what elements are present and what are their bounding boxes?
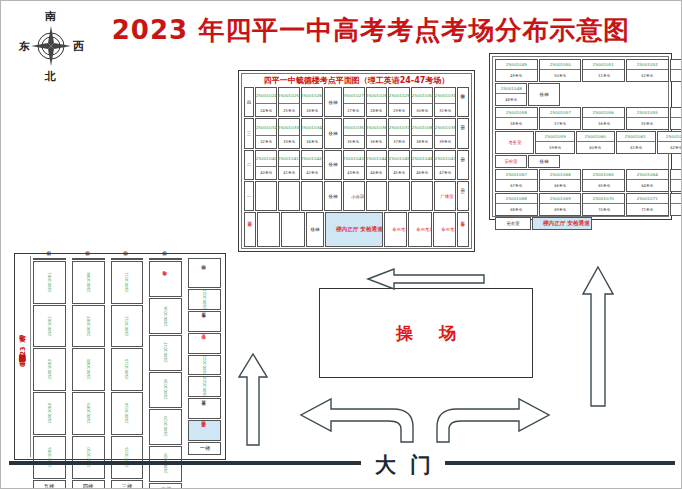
room-cell: 25001016 [149,298,182,334]
curved-arrow-right [433,397,553,443]
text: 45考场 [393,170,405,175]
room-cell: 2500107171考场 [626,193,669,216]
text: 33考场 [283,139,295,144]
page-title: 2023 年四平一中高考考点考场分布示意图 [71,13,671,48]
stairs-cell: 楼梯 [33,258,66,260]
room-label: 43考场 [344,167,364,179]
text: 66考场 [554,183,566,188]
text: 25001030 [412,93,433,98]
text: 30考场 [416,108,428,113]
room-number: 25001042 [302,151,322,167]
room-label: 24考场 [256,104,276,116]
special-room-cell: 考务室 [495,131,534,154]
building-left-title: 四平一中思齐楼考点平面图（理工英语01-23考场） [17,256,31,457]
text: 25001009 [86,403,91,423]
room-cell: 2500104040考场 [255,150,277,180]
gate-line-right [445,461,675,465]
text: 25001034 [301,125,322,130]
room-label: 34考场 [302,136,322,148]
room-cell: 2500104343考场 [343,150,365,180]
room-label: 71考场 [627,204,668,215]
empty-cell [278,181,300,211]
room-number: 25001048 [496,84,526,94]
room-number: 25001037 [389,119,409,135]
text: 47考场 [439,170,451,175]
room-cell: 2500102525考场 [278,87,300,117]
room-label: 60考场 [577,142,614,153]
text: 一 [247,193,251,199]
room-label: 68考场 [496,204,537,215]
room-cell: 25001005 [33,436,66,479]
room-cell: 25001014 [111,392,144,435]
room-label: 62考场 [658,142,682,153]
room-label: 36考场 [367,136,387,148]
text: 25001039 [434,125,455,130]
text: 25001023 [202,377,207,397]
building-right: 四平一中致远楼考点平面图（理工英语48-72考场） 2500104949考场25… [489,53,672,220]
text: 更衣室 [506,220,519,226]
gate-line-left [9,461,361,465]
text: 25001001 [47,272,52,292]
floor-row: 2500104949考场2500105050考场2500105151考场2500… [495,59,666,82]
text: 25001043 [343,156,364,161]
room-number: 25001034 [302,119,322,135]
building-middle: 四平一中毓德楼考点平面图（理工英语24-47考场） 四2500102424考场2… [238,70,475,252]
text: 25001027 [343,93,364,98]
room-number: 25001071 [627,194,668,204]
room-number: 25001045 [389,151,409,167]
text: 64考场 [642,183,654,188]
room-cell: 25001021 [188,289,221,310]
stairs-cell: 楼梯 [324,87,342,117]
room-label: 26考场 [302,104,322,116]
floor-row: 考务室2500105959考场2500106060考场2500106161考场2… [495,131,666,154]
text: 52考场 [642,73,654,78]
backup-room-cell: 备用考场 [408,212,431,247]
text: 25001008 [86,360,91,380]
text: 25001051 [593,62,614,67]
floor-column: 楼梯备用考场2500101625001017250010182500101925… [149,258,182,455]
stairs-cell: 楼梯 [324,181,342,211]
empty-space [592,217,653,230]
room-cell: 2500106060考场 [576,131,615,154]
room-label: 55考场 [627,118,668,129]
room-cell: 2500106969考场 [539,193,582,216]
room-cell: 2500106262考场 [657,131,682,154]
text: 25001028 [366,93,387,98]
room-cell: 2500106767考场 [495,169,538,192]
floor-column: 楼梯25001001250010022500100325001004250010… [33,258,66,455]
text: 25001006 [86,272,91,292]
room-number: 25001028 [367,88,387,104]
floor-cell: 三 [244,118,254,148]
room-cell: 25001018 [149,372,182,408]
text: 25001018 [164,380,169,400]
room-number: 25001046 [412,151,432,167]
text: 安检室 [504,158,517,164]
room-number: 25001054 [671,108,682,118]
floor-row: 一楼梯小会议室广播室一楼 [244,181,469,211]
room-cell: 25001004 [33,392,66,435]
curved-arrow-left [297,397,417,443]
room-label: 25考场 [279,104,299,116]
text: 二楼 [161,486,171,489]
up-arrow-right [582,266,614,408]
room-label: 29考场 [389,104,409,116]
text: 楼内正厅 安检通道 [336,226,383,232]
stairs-cell: 楼梯 [188,258,221,288]
column-cells: 2500100625001007250010082500100925001010 [72,261,105,480]
text: 68考场 [510,207,522,212]
text: 25001013 [125,360,130,380]
text: 25001066 [549,172,570,177]
text: 25001037 [389,125,410,130]
column-cells: 备用考场250010162500101725001018250010192500… [149,261,182,483]
room-cell: 25001023 [188,376,221,397]
room-number: 25001053 [671,60,682,70]
room-cell: 2500105858考场 [495,107,538,130]
text: 35考场 [348,139,360,144]
room-label: 47考场 [435,167,455,179]
text: 65考场 [598,183,610,188]
text: 25001071 [637,196,658,201]
left-direction-arrow [366,268,486,290]
text: 62考场 [670,145,682,150]
text: 四楼 [83,483,93,489]
room-cell: 2500105050考场 [539,59,582,82]
entrance-row: 更衣室楼内正厅 安检通道 [495,217,666,230]
room-number: 25001039 [435,119,455,135]
room-cell: 2500103939考场 [434,118,456,148]
text: 五楼 [44,483,54,489]
playground-label: 操场 [370,322,482,345]
room-number: 25001051 [583,60,624,70]
room-label: 52考场 [627,70,668,81]
room-label: 70考场 [583,204,624,215]
text: 42考场 [306,170,318,175]
empty-cell [281,212,304,247]
floor-row: 二2500104040考场2500104141考场2500104242考场楼梯2… [244,150,469,180]
text: 25001007 [86,316,91,336]
room-cell: 25001022 [188,355,221,376]
floor-column: 楼梯25001021考务室安检室2500102225001023更衣室正厅 安检… [188,258,221,455]
text: 25001047 [434,156,455,161]
room-label: 58考场 [496,118,537,129]
room-label: 67考场 [496,180,537,191]
text: 25001057 [549,110,570,115]
room-cell: 25001017 [149,335,182,371]
room-number: 25001026 [302,88,322,104]
room-number: 25001030 [412,88,432,104]
room-cell: 2500103434考场 [301,118,323,148]
room-cell: 25001010 [72,436,105,479]
room-number: 25001024 [256,88,276,104]
text: 67考场 [510,183,522,188]
room-cell: 2500103333考场 [278,118,300,148]
text: 一楼 [199,445,209,452]
text: 24考场 [260,108,272,113]
room-label: 27考场 [344,104,364,116]
room-label: 48考场 [496,94,526,105]
room-cell: 2500103131考场 [434,87,456,117]
text: 25001050 [549,62,570,67]
row-cells: 2500105858考场2500105757考场2500105656考场2500… [495,107,682,130]
floor-row: 2500106868考场2500106969考场2500107070考场2500… [495,193,666,216]
text: 正厅 安检通道 [202,430,208,431]
text: 44考场 [371,170,383,175]
text: 楼梯 [328,162,337,168]
room-number: 25001031 [435,88,455,104]
text: 25001067 [506,172,527,177]
text: 25001052 [637,62,658,67]
room-number: 25001062 [658,132,682,142]
room-cell: 2500107272考场 [670,193,682,216]
text: 60考场 [590,145,602,150]
row-cells: 2500104848考场楼梯 [495,83,653,106]
stairs-cell: 楼梯 [111,258,144,260]
text: 69考场 [554,207,566,212]
empty-cell [366,181,388,211]
room-label: 64考场 [627,180,668,191]
text: 39考场 [439,139,451,144]
rest-room-cell: 休息室 [244,212,256,247]
building-left: 四平一中思齐楼考点平面图（理工英语01-23考场） 楼梯250010012500… [14,253,226,460]
room-number: 25001055 [627,108,668,118]
text: 三楼 [122,483,132,489]
room-cell: 25001008 [72,348,105,391]
room-label: 56考场 [583,118,624,129]
room-cell: 25001007 [72,305,105,348]
text: 25001011 [125,272,130,292]
room-cell: 2500106363考场 [670,169,682,192]
text: 57考场 [554,121,566,126]
text: 25001017 [164,343,169,363]
room-cell: 2500104747考场 [434,150,456,180]
text: 25001021 [202,289,207,309]
text: 25001060 [585,134,606,139]
room-label: 35考场 [344,136,364,148]
stairs-cell: 楼梯 [324,150,342,180]
text: 29考场 [393,108,405,113]
text: 备用考场 [392,227,407,233]
room-number: 25001058 [496,108,537,118]
text: 28考场 [371,108,383,113]
floor-label: 三楼 [111,480,144,489]
empty-space [560,83,653,106]
text: 25001056 [593,110,614,115]
room-label: 30考场 [412,104,432,116]
room-number: 25001029 [389,88,409,104]
half-row: 2500104848考场楼梯 [495,83,666,106]
room-cell: 2500103737考场 [388,118,410,148]
text: 38考场 [416,139,428,144]
room-cell: 25001011 [111,261,144,304]
text: 71考场 [642,207,654,212]
room-label: 28考场 [367,104,387,116]
text: 27考场 [348,108,360,113]
exam-office-cell: 考务室 [457,212,469,247]
text: 43考场 [348,170,360,175]
room-number: 25001060 [577,132,614,142]
building-middle-rows: 四2500102424考场2500102525考场2500102626考场楼梯2… [244,86,469,247]
room-cell: 2500105151考场 [582,59,625,82]
text: 25001059 [544,134,565,139]
compass-east-label: 东 [18,40,30,53]
text: 25001044 [366,156,387,161]
empty-cell [257,212,280,247]
column-cells: 2500100125001002250010032500100425001005 [33,261,66,480]
text: 25001024 [255,93,276,98]
special-room-cell: 广播室 [434,181,456,211]
stairs-cell: 楼梯 [528,155,560,168]
backup-room-cell: 备用考场 [384,212,407,247]
text: 25001045 [389,156,410,161]
room-cell: 2500106868考场 [495,193,538,216]
floor-cell: 四 [244,87,254,117]
room-number: 25001033 [279,119,299,135]
room-number: 25001027 [344,88,364,104]
text: 25001069 [549,196,570,201]
room-label: 40考场 [256,167,276,179]
room-number: 25001041 [279,151,299,167]
exam-site-map-page: 南 东 西 北 2023 年四平一中高考考点考场分布示意图 四平一中毓德楼考点平… [0,0,682,489]
text: 25001029 [389,93,410,98]
text: 25001058 [506,110,527,115]
floor-label-right: 一楼 [457,181,469,211]
text: 25001061 [625,134,646,139]
room-number: 25001032 [256,119,276,135]
floor-column: 楼梯25001011250010122500101325001014250010… [111,258,144,455]
text: 25001035 [343,125,364,130]
room-label: 42考场 [302,167,322,179]
column-cells: 2500101125001012250010132500101425001015 [111,261,144,480]
room-label: 38考场 [412,136,432,148]
text: 56考场 [598,121,610,126]
room-cell: 2500105252考场 [626,59,669,82]
spacer [653,217,666,230]
stairs-cell: 楼梯 [306,212,324,247]
text: 25001032 [255,125,276,130]
text: 25001019 [164,417,169,437]
room-number: 25001065 [583,170,624,180]
floor-label: 一楼 [188,442,221,455]
room-cell: 2500106464考场 [626,169,669,192]
text: 25001068 [506,196,527,201]
floor-column: 楼梯25001006250010072500100825001009250010… [72,258,105,455]
entrance-row: 休息室楼梯楼内正厅 安检通道备用考场备用考场备用考场考务室 [244,212,469,247]
room-cell: 2500105454考场 [670,107,682,130]
room-label: 39考场 [435,136,455,148]
column-cells: 25001021考务室安检室2500102225001023更衣室正厅 安检通道 [188,289,221,442]
room-number: 25001067 [496,170,537,180]
room-number: 25001036 [367,119,387,135]
room-cell: 2500103030考场 [411,87,433,117]
floor-label-right [653,155,666,168]
room-cell: 2500104242考场 [301,150,323,180]
room-label: 63考场 [671,180,682,191]
playground: 操场 [319,288,533,378]
text: 25考场 [283,108,295,113]
stairs-cell: 楼梯 [324,118,342,148]
room-number: 25001056 [583,108,624,118]
text: 59考场 [549,145,561,150]
floor-row: 四2500102424考场2500102525考场2500102626考场楼梯2… [244,87,469,117]
floor-label-right: 四楼 [457,87,469,117]
text: 50考场 [554,73,566,78]
text: 25001033 [278,125,299,130]
room-number: 25001040 [256,151,276,167]
text: 25001016 [164,306,169,326]
security-channel-cell: 正厅 安检通道 [188,420,221,441]
room-label-cell: 更衣室 [188,398,221,419]
room-cell: 2500103636考场 [366,118,388,148]
text: 广播室 [441,193,454,199]
text: 楼梯 [328,99,337,105]
text: 楼梯 [540,158,549,164]
text: 25001065 [593,172,614,177]
text: 楼梯 [328,193,337,199]
room-number: 25001052 [627,60,668,70]
compass-south-label: 南 [44,10,56,23]
room-cell: 2500105757考场 [539,107,582,130]
text: 楼梯 [311,227,320,233]
text: 55考场 [642,121,654,126]
room-number: 25001050 [540,60,581,70]
room-number: 25001068 [496,194,537,204]
room-cell: 2500106666考场 [539,169,582,192]
building-left-columns: 楼梯25001001250010022500100325001004250010… [31,256,223,457]
floor-label-right [653,83,666,106]
text: 26考场 [306,108,318,113]
room-number: 25001066 [540,170,581,180]
room-label: 44考场 [367,167,387,179]
text: 32考场 [260,139,272,144]
security-channel-cell: 楼内正厅 安检通道 [532,217,592,230]
up-arrow-left [238,353,268,447]
room-number: 25001044 [367,151,387,167]
room-number: 25001043 [344,151,364,167]
text: 楼梯 [328,130,337,136]
floor-label: 四楼 [72,480,105,489]
room-cell: 2500105353考场 [670,59,682,82]
text: 25001042 [301,156,322,161]
room-cell: 2500104444考场 [366,150,388,180]
room-cell: 2500105656考场 [582,107,625,130]
text: 31考场 [439,108,451,113]
half-row: 安检室楼梯 [495,155,666,168]
empty-cell [301,181,323,211]
text: 25001004 [47,403,52,423]
room-label: 65考场 [583,180,624,191]
text: 51考场 [598,73,610,78]
empty-cell [388,181,410,211]
room-number: 25001038 [412,119,432,135]
empty-cell [255,181,277,211]
room-number: 25001057 [540,108,581,118]
room-cell: 2500105555考场 [626,107,669,130]
room-label: 33考场 [279,136,299,148]
room-label: 49考场 [496,70,537,81]
text: 备用考场 [441,227,456,233]
text: 25001025 [278,93,299,98]
text: 49考场 [510,73,522,78]
row-cells: 2500104949考场2500105050考场2500105151考场2500… [495,59,682,82]
text: 25001064 [637,172,658,177]
room-cell: 2500102626考场 [301,87,323,117]
room-cell: 2500103232考场 [255,118,277,148]
room-cell: 2500104949考场 [495,59,538,82]
empty-space [560,155,653,168]
